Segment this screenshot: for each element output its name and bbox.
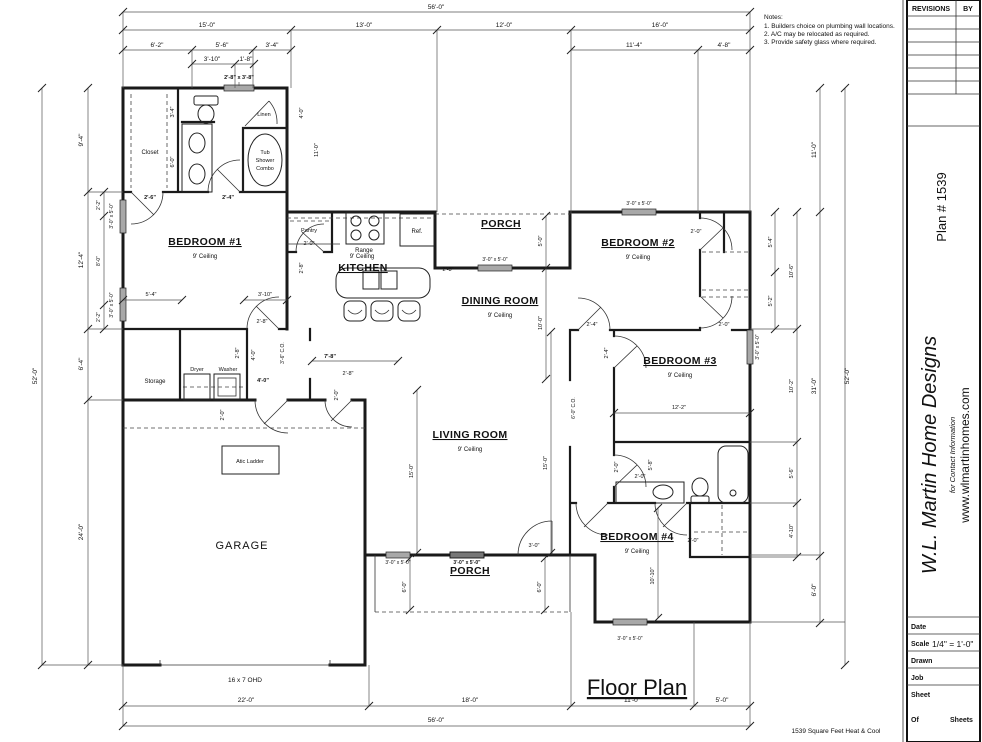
toilet-bath2 [691, 478, 709, 503]
dim-br3-12-2: 12'-2" [672, 405, 686, 411]
dim-hall-2-8: 2'-8" [235, 347, 241, 358]
label-linen: Linen [257, 112, 270, 118]
dim-right-5-6: 5'-6" [789, 467, 795, 478]
dim-closet-3-4: 3'-4" [170, 106, 176, 117]
company-tagline: for Contact Information [948, 417, 957, 493]
floor-plan-drawing: BEDROOM #1 9' Ceiling 9' Ceiling KITCHEN… [0, 0, 982, 742]
label-washer: Washer [219, 367, 238, 373]
label-tub-2: Shower [256, 158, 275, 164]
dim-porch-6-0b: 6'-0" [537, 581, 543, 592]
dim-right-6: 6'-0" [811, 583, 818, 597]
title-block-fields: Date Scale 1/4" = 1'-0" Drawn Job Sheet … [907, 617, 980, 724]
area-note: 1539 Square Feet Heat & Cool [792, 728, 881, 735]
label-tub-1: Tub [260, 150, 269, 156]
dim-top-13: 13'-0" [356, 22, 373, 29]
company-website: www.wlmartinhomes.com [958, 387, 972, 523]
window-bedroom1-b [120, 288, 126, 321]
dim-top-12: 12'-0" [496, 22, 513, 29]
dim-top-5-6: 5'-6" [216, 42, 230, 49]
dim-door-bath2: 2'-0" [614, 461, 620, 472]
scale-value: 1/4" = 1'-0" [932, 639, 973, 649]
window-dining [478, 265, 512, 271]
dim-living-15-b: 15'-0" [543, 456, 549, 470]
dim-passage-2-8: 2'-8" [443, 267, 454, 273]
dim-window-right: 3'-0" x 5'-0" [755, 334, 761, 359]
room-kitchen: KITCHEN [338, 262, 387, 274]
dim-left-9-4: 9'-4" [78, 133, 85, 147]
notes: Notes: 1. Builders choice on plumbing wa… [764, 14, 895, 46]
dim-window-porch-a: 3'-0" x 5'-0" [385, 560, 410, 566]
label-attic-ladder: Atic Ladder [236, 459, 264, 465]
dim-window-left-a: 3'-0" x 5'-0" [109, 203, 115, 228]
dim-vanity-2-0: 2'-0" [635, 474, 646, 480]
dim-living-2-8: 2'-8" [343, 371, 354, 377]
range [346, 212, 384, 244]
dim-bottom-total: 56'-0" [428, 717, 445, 724]
window-bedroom1-a [120, 200, 126, 233]
ceiling-bedroom3: 9' Ceiling [668, 373, 693, 379]
dim-7-8: 7'-8" [324, 354, 336, 360]
date-label: Date [911, 624, 926, 631]
dim-door-br2-closet: 2'-0" [691, 229, 702, 235]
dim-window-2-8x3-8: 2'-8" x 3'-8" [224, 75, 254, 81]
dim-top-16: 16'-0" [652, 22, 669, 29]
dim-door-closet1: 2'-6" [144, 195, 156, 201]
ceiling-dining: 9' Ceiling [488, 313, 513, 319]
plan-number: Plan # 1539 [934, 172, 949, 241]
dim-window-br4: 3'-0" x 5'-0" [617, 636, 642, 642]
label-ref: Ref. [411, 229, 422, 235]
dim-top-3-10: 3'-10" [204, 56, 221, 63]
by-header: BY [963, 6, 973, 13]
tub-bath2 [718, 446, 748, 503]
room-porch-top: PORCH [481, 218, 521, 230]
room-bedroom4: BEDROOM #4 [600, 531, 673, 543]
dim-right-31: 31'-0" [811, 377, 818, 394]
dim-living-co: 6'-0" C.O. [571, 397, 577, 419]
window-bedroom3 [747, 330, 753, 364]
kitchen-island [336, 268, 430, 321]
dim-kitchen-2-8: 2'-8" [299, 262, 305, 273]
room-labels: BEDROOM #1 9' Ceiling 9' Ceiling KITCHEN… [144, 218, 716, 577]
note-2: 2. A/C may be relocated as required. [764, 31, 870, 38]
title-block: REVISIONS BY Plan # 1539 W.L. Martin Hom… [903, 0, 980, 742]
dim-window-dining: 3'-0" x 5'-0" [482, 257, 507, 263]
company-name: W.L. Martin Home Designs [919, 336, 941, 574]
dim-right-5-2: 5'-2" [768, 295, 774, 306]
note-1: 1. Builders choice on plumbing wall loca… [764, 23, 895, 30]
job-label: Job [911, 675, 923, 682]
dim-door-br2-closet-b: 2'-0" [719, 322, 730, 328]
vanity-bath2 [616, 482, 684, 503]
ceiling-kitchen: 9' Ceiling [350, 254, 375, 260]
dim-door-br2: 2'-4" [587, 322, 598, 328]
room-bedroom3: BEDROOM #3 [643, 355, 716, 367]
room-dining: DINING ROOM [462, 295, 539, 307]
room-garage: GARAGE [215, 540, 268, 552]
ceiling-bedroom2: 9' Ceiling [626, 255, 651, 261]
dim-top-6-2: 6'-2" [151, 42, 165, 49]
dim-bath2-5-8: 5'-8" [648, 459, 654, 470]
dim-hall-4-0: 4'-0" [251, 349, 257, 360]
dim-right-10-2: 10'-2" [789, 379, 795, 393]
dim-bath1-11-0: 11'-0" [314, 143, 320, 157]
dimension-text: 56'-0" 15'-0" 13'-0" 12'-0" 16'-0" 6'-2"… [32, 4, 851, 724]
dim-right-11: 11'-0" [811, 141, 818, 158]
drawn-label: Drawn [911, 658, 932, 665]
dim-left-24: 24'-0" [78, 523, 85, 540]
dim-left-6-4: 6'-4" [78, 357, 85, 371]
ceiling-living: 9' Ceiling [458, 447, 483, 453]
dim-left-2-2b: 2'-2" [96, 312, 102, 322]
dim-window-left-b: 3'-0" x 5'-0" [109, 292, 115, 317]
label-range: Range [355, 248, 373, 254]
dim-porch-door-3-0: 3'-0" [529, 543, 540, 549]
dim-dining-10-0: 10'-0" [538, 316, 544, 330]
dim-living-2-0: 2'-0" [334, 389, 340, 400]
dim-top-3-4: 3'-4" [266, 42, 280, 49]
dim-top-1-8: 1'-8" [240, 56, 254, 63]
dim-closet-6-0: 6'-0" [170, 156, 176, 167]
window-bedroom4 [613, 619, 647, 625]
dim-br1-5-4: 5'-4" [146, 292, 157, 298]
dim-br4-10-10: 10'-10" [650, 567, 656, 584]
ceiling-bedroom4: 9' Ceiling [625, 549, 650, 555]
dim-right-5-4: 5'-4" [768, 236, 774, 247]
dim-left-12-4: 12'-4" [78, 251, 85, 268]
dim-top-15: 15'-0" [199, 22, 216, 29]
drawing-title: Floor Plan [587, 675, 687, 700]
window-bedroom2 [622, 209, 656, 215]
label-pantry: Pantry [301, 228, 317, 234]
note-3: 3. Provide safety glass where required. [764, 39, 877, 46]
revisions-header: REVISIONS [912, 6, 950, 13]
dim-top-11-4: 11'-4" [626, 42, 643, 49]
revisions-table: REVISIONS BY [907, 0, 980, 94]
vanity-bath1 [182, 124, 212, 192]
dim-hall-4-0b: 4'-0" [257, 378, 269, 384]
toilet-bath1 [194, 96, 218, 123]
label-garage-door: 16 x 7 OHD [228, 677, 262, 684]
label-dryer: Dryer [190, 367, 204, 373]
scale-label: Scale [911, 641, 929, 648]
label-closet: Closet [141, 150, 158, 156]
dim-bottom-18: 18'-0" [462, 697, 479, 704]
room-bedroom1: BEDROOM #1 [168, 236, 241, 248]
dim-top-total: 56'-0" [428, 4, 445, 11]
dim-door-br1: 2'-8" [257, 319, 268, 325]
notes-title: Notes: [764, 14, 783, 21]
dim-living-15-a: 15'-0" [409, 464, 415, 478]
dim-door-br3: 2'-4" [604, 347, 610, 358]
dim-porch-5-0: 5'-0" [538, 235, 544, 246]
dim-window-porch-b: 3'-0" x 5'-0" [453, 560, 481, 566]
dim-top-4-8: 4'-8" [718, 42, 732, 49]
dim-door-bath1: 2'-4" [222, 195, 234, 201]
dim-right-4-10: 4'-10" [789, 524, 795, 538]
dim-bottom-22: 22'-0" [238, 697, 255, 704]
sheets-label: Sheets [950, 717, 973, 724]
dim-right-10-6: 10'-6" [789, 264, 795, 278]
ceiling-bedroom1: 9' Ceiling [193, 254, 218, 260]
room-bedroom2: BEDROOM #2 [601, 237, 674, 249]
of-label: Of [911, 717, 919, 724]
room-porch-bottom: PORCH [450, 565, 490, 577]
dim-pantry-2-0: 2'-0" [304, 241, 315, 247]
dim-door-br4: 2'-0" [688, 538, 699, 544]
dim-porch-6-0a: 6'-0" [402, 581, 408, 592]
window-living-a [386, 552, 410, 558]
dim-right-total: 52'-0" [844, 367, 851, 384]
room-storage: Storage [144, 379, 166, 385]
dim-br1-3-10: 3'-10" [258, 292, 272, 298]
dim-left-8-0: 8'-0" [96, 256, 102, 266]
sheet-label: Sheet [911, 692, 931, 699]
label-tub-3: Combo [256, 166, 274, 172]
window-living-b [450, 552, 484, 558]
dim-bottom-5: 5'-0" [716, 697, 730, 704]
dim-bath1-4-0: 4'-0" [299, 107, 305, 118]
dim-left-2-2a: 2'-2" [96, 200, 102, 210]
room-living: LIVING ROOM [433, 429, 508, 441]
dim-utility-2-0: 2'-0" [220, 409, 226, 420]
floor-plan-sheet: BEDROOM #1 9' Ceiling 9' Ceiling KITCHEN… [0, 0, 982, 742]
dim-window-br2: 3'-0" x 5'-0" [626, 201, 651, 207]
dim-hall-co: 3'-6" C.O. [280, 342, 286, 364]
dim-left-total: 52'-0" [32, 367, 39, 384]
